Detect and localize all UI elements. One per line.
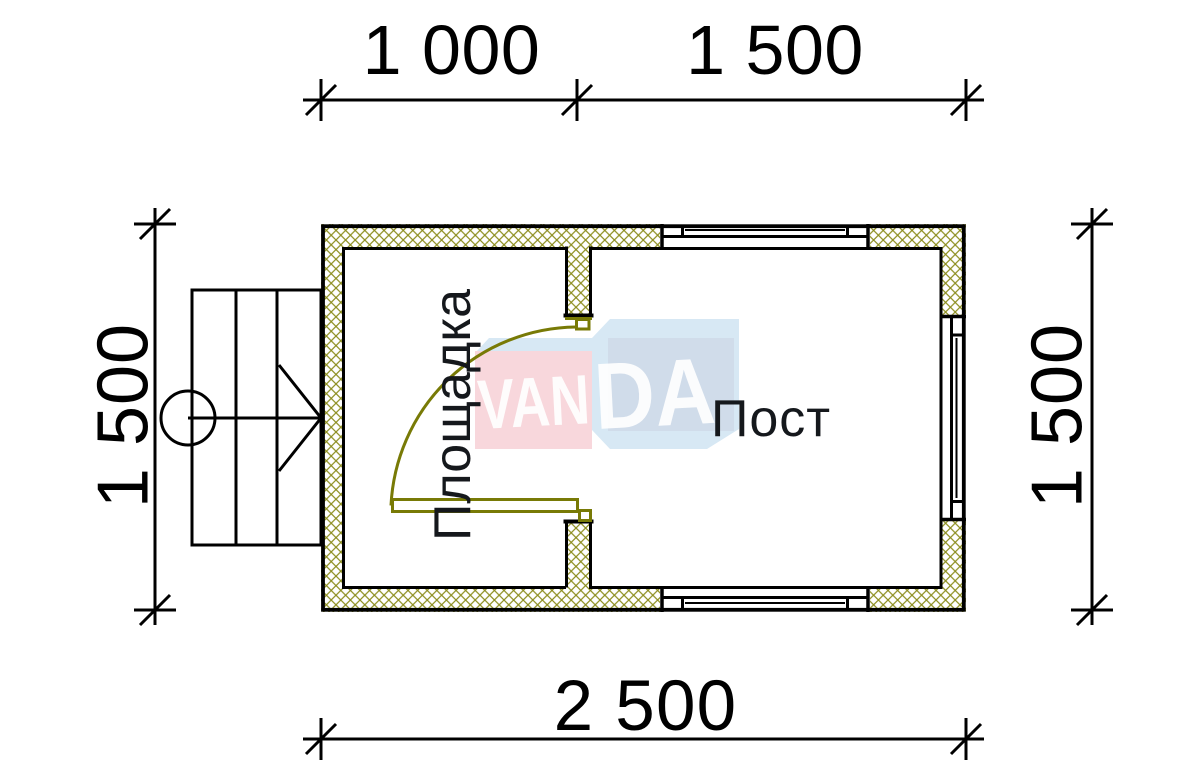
svg-text:Площадка: Площадка [424, 289, 482, 541]
svg-text:Пост: Пост [711, 390, 831, 448]
svg-text:1 500: 1 500 [84, 323, 164, 508]
svg-text:DA: DA [592, 338, 718, 449]
svg-text:1 000: 1 000 [363, 11, 541, 89]
svg-text:1 500: 1 500 [1018, 323, 1098, 508]
svg-text:1 500: 1 500 [686, 11, 864, 89]
svg-text:VAN: VAN [476, 360, 592, 444]
svg-text:2 500: 2 500 [554, 667, 738, 746]
